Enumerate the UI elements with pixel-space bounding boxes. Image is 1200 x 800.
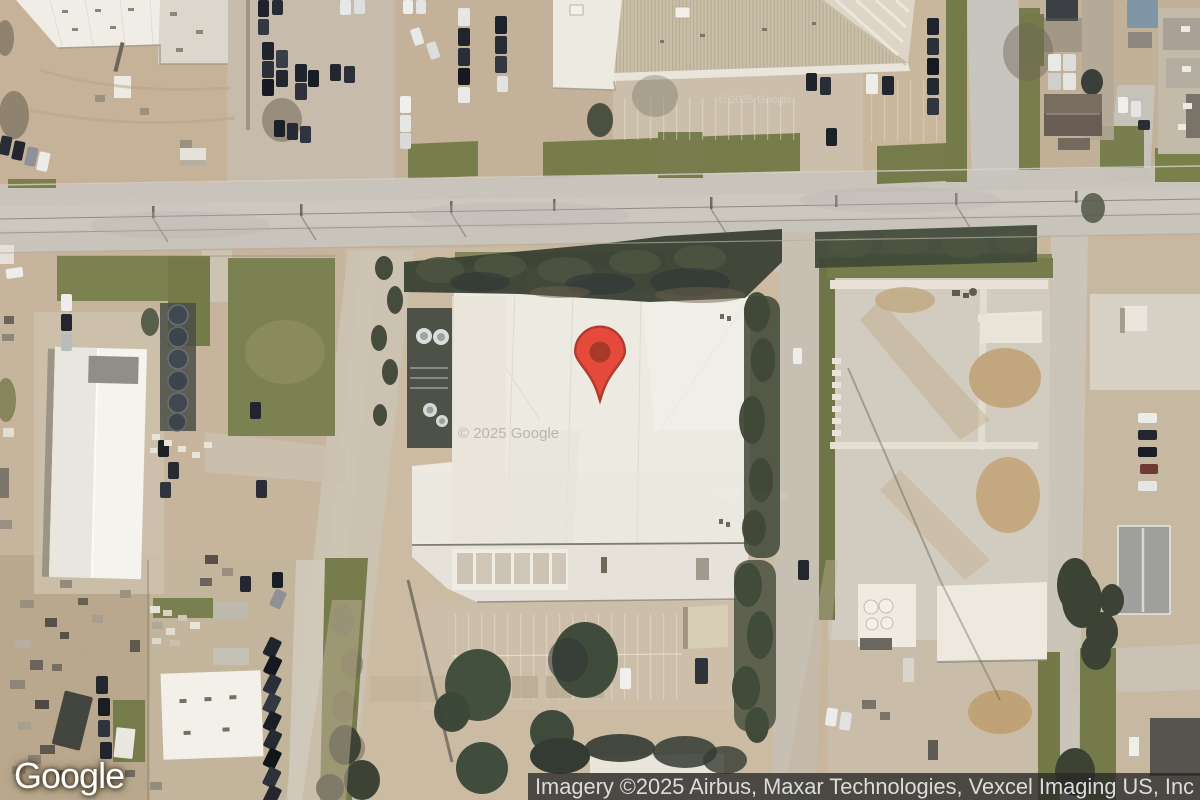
svg-text:© 2025 Google: © 2025 Google	[718, 94, 792, 106]
svg-text:© 2025 Google: © 2025 Google	[458, 425, 559, 442]
